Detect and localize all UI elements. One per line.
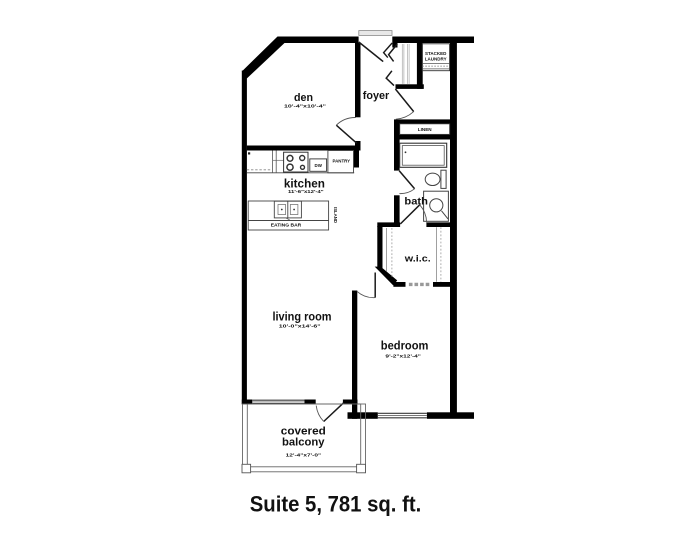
svg-text:11'-6"x12'-4": 11'-6"x12'-4" bbox=[288, 189, 324, 194]
svg-text:LAUNDRY: LAUNDRY bbox=[425, 57, 447, 62]
svg-text:10'-0"x14'-6": 10'-0"x14'-6" bbox=[279, 324, 321, 329]
svg-text:foyer: foyer bbox=[363, 90, 390, 102]
svg-text:10'-4"x10'-4": 10'-4"x10'-4" bbox=[284, 104, 326, 109]
svg-text:ISLAND: ISLAND bbox=[333, 207, 338, 223]
svg-text:balcony: balcony bbox=[282, 436, 325, 448]
svg-text:9'-2"x12'-4": 9'-2"x12'-4" bbox=[385, 354, 421, 359]
svg-text:PANTRY: PANTRY bbox=[333, 159, 351, 164]
svg-text:bedroom: bedroom bbox=[381, 341, 429, 353]
svg-text:Suite 5, 781 sq. ft.: Suite 5, 781 sq. ft. bbox=[250, 491, 422, 516]
svg-text:den: den bbox=[294, 92, 313, 104]
svg-text:living room: living room bbox=[272, 311, 331, 323]
svg-text:EATING BAR: EATING BAR bbox=[271, 223, 302, 228]
svg-text:STACKED: STACKED bbox=[425, 51, 447, 56]
svg-text:bath: bath bbox=[404, 195, 428, 207]
svg-text:12'-4"x7'-0": 12'-4"x7'-0" bbox=[286, 453, 321, 458]
svg-text:w.i.c.: w.i.c. bbox=[404, 254, 431, 265]
svg-text:DW: DW bbox=[315, 163, 323, 168]
svg-text:LINEN: LINEN bbox=[418, 127, 432, 132]
